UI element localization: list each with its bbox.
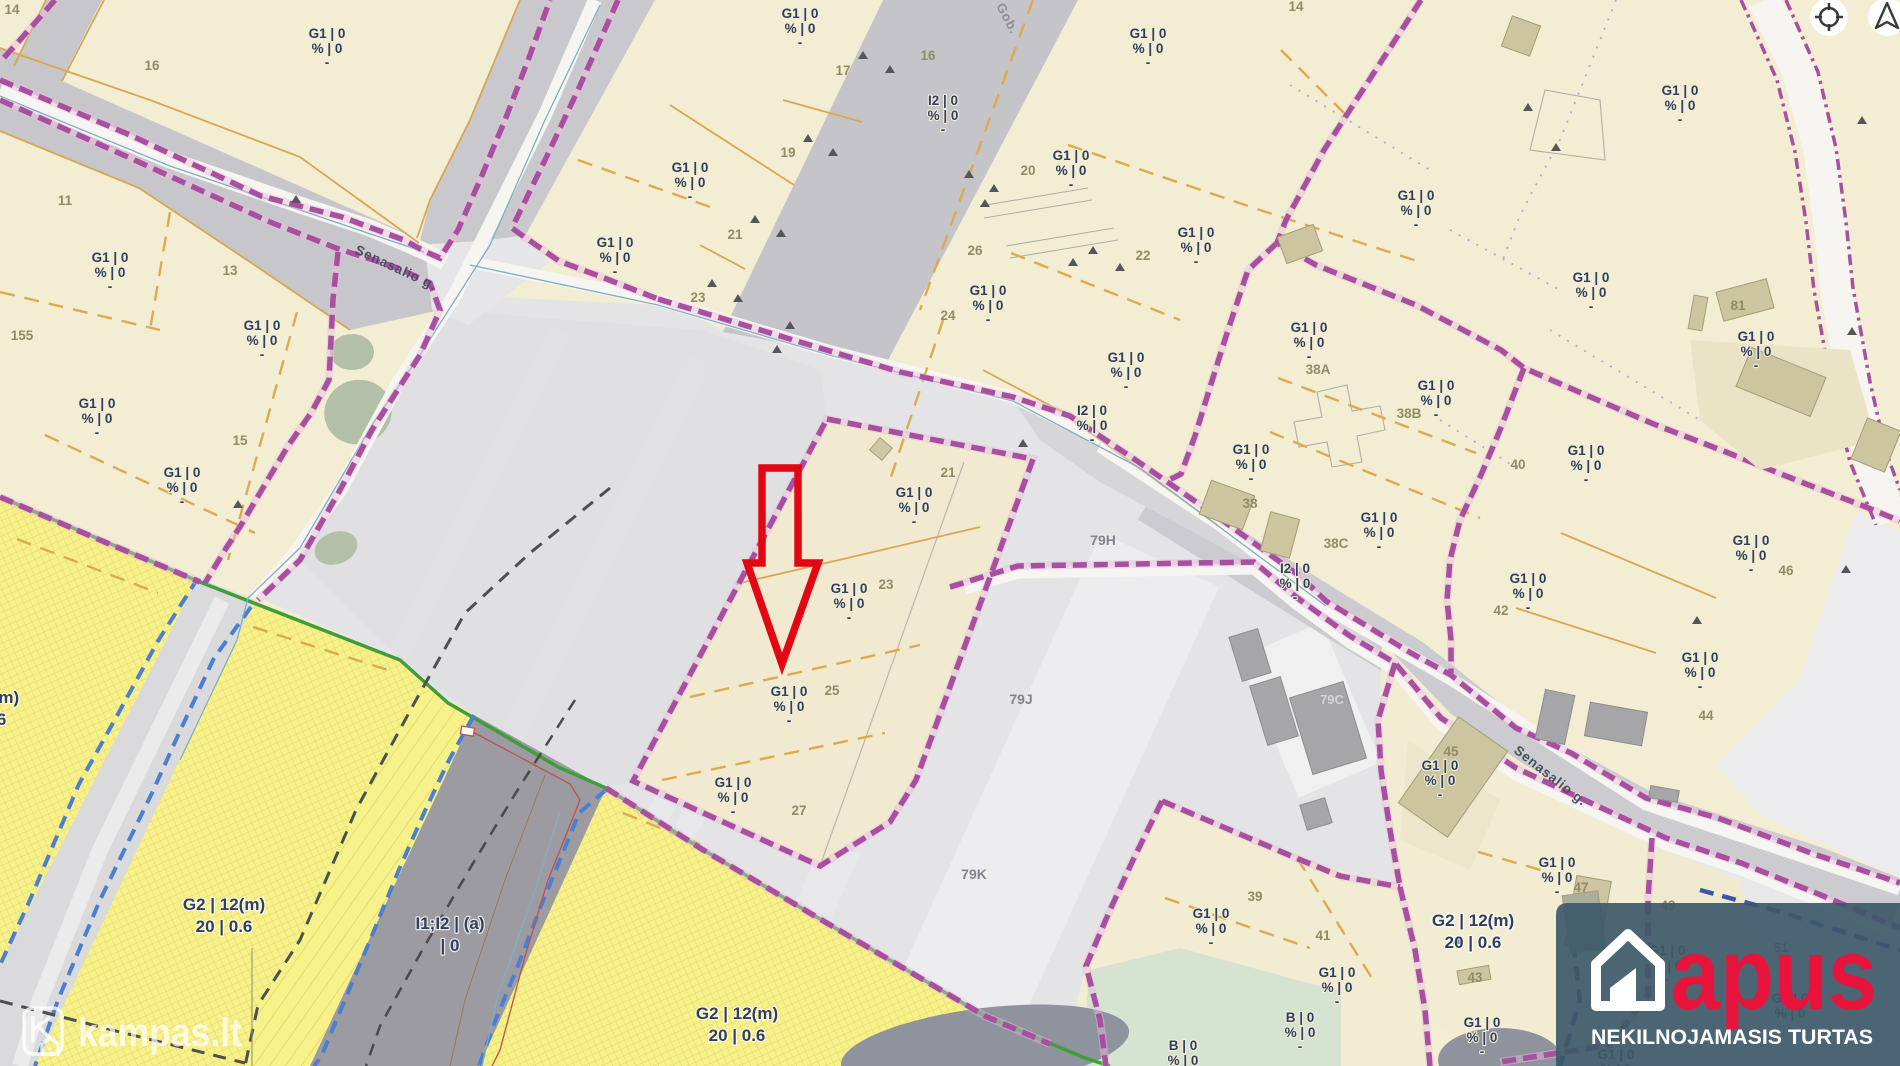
svg-text:-: - — [1438, 787, 1443, 802]
svg-text:79K: 79K — [961, 866, 987, 882]
svg-text:20: 20 — [1020, 163, 1035, 178]
svg-text:apus: apus — [1671, 917, 1877, 1031]
svg-text:27: 27 — [791, 803, 806, 818]
svg-text:38B: 38B — [1397, 406, 1422, 421]
svg-text:NEKILNOJAMASIS TURTAS: NEKILNOJAMASIS TURTAS — [1591, 1025, 1873, 1049]
svg-text:-: - — [613, 264, 618, 279]
svg-text:G1 | 0: G1 | 0 — [597, 235, 634, 250]
svg-text:% | 0: % | 0 — [247, 333, 278, 348]
svg-text:-: - — [941, 122, 946, 137]
svg-text:% | 0: % | 0 — [718, 790, 749, 805]
svg-text:I2 | 0: I2 | 0 — [928, 93, 958, 108]
svg-text:-: - — [688, 189, 693, 204]
svg-text:-: - — [1584, 472, 1589, 487]
svg-text:-: - — [1589, 299, 1594, 314]
svg-text:G1 | 0: G1 | 0 — [1130, 26, 1167, 41]
svg-text:G1 | 0: G1 | 0 — [1398, 188, 1435, 203]
svg-text:% | 0: % | 0 — [82, 411, 113, 426]
svg-text:-: - — [325, 55, 330, 70]
svg-text:G1 | 0: G1 | 0 — [1662, 83, 1699, 98]
svg-text:I2 | 0: I2 | 0 — [1077, 403, 1107, 418]
svg-text:% | 0: % | 0 — [312, 41, 343, 56]
svg-text:I1;I2 | (a): I1;I2 | (a) — [416, 914, 485, 933]
svg-text:% | 0: % | 0 — [167, 480, 198, 495]
svg-text:24: 24 — [940, 308, 956, 323]
svg-text:% | 0: % | 0 — [928, 108, 959, 123]
svg-text:-: - — [1678, 112, 1683, 127]
svg-text:G1 | 0: G1 | 0 — [1464, 1015, 1501, 1030]
svg-text:G1 | 0: G1 | 0 — [1053, 148, 1090, 163]
svg-text:% | 0: % | 0 — [1181, 240, 1212, 255]
svg-text:-: - — [1124, 379, 1129, 394]
svg-text:-: - — [1249, 471, 1254, 486]
svg-text:G1 | 0: G1 | 0 — [1422, 758, 1459, 773]
svg-text:-: - — [180, 494, 185, 509]
svg-text:B | 0: B | 0 — [1169, 1038, 1198, 1053]
svg-text:-: - — [1749, 562, 1754, 577]
svg-text:% | 0: % | 0 — [1077, 418, 1108, 433]
svg-text:39: 39 — [1247, 889, 1262, 904]
svg-text:-: - — [787, 713, 792, 728]
svg-text:G1 | 0: G1 | 0 — [896, 485, 933, 500]
svg-text:% | 0: % | 0 — [1111, 365, 1142, 380]
svg-text:G1 | 0: G1 | 0 — [1193, 906, 1230, 921]
svg-text:G2 | 12(m): G2 | 12(m) — [696, 1004, 778, 1023]
svg-text:% | 0: % | 0 — [834, 596, 865, 611]
svg-text:-: - — [986, 312, 991, 327]
svg-text:G1 | 0: G1 | 0 — [79, 396, 116, 411]
svg-text:% | 0: % | 0 — [1285, 1025, 1316, 1040]
svg-text:13: 13 — [222, 263, 238, 278]
svg-text:% | 0: % | 0 — [1467, 1030, 1498, 1045]
svg-text:% | 0: % | 0 — [1364, 525, 1395, 540]
svg-text:23: 23 — [690, 290, 706, 305]
svg-text:21: 21 — [727, 227, 743, 242]
svg-text:G1 | 0: G1 | 0 — [1539, 855, 1576, 870]
svg-text:% | 0: % | 0 — [899, 500, 930, 515]
svg-text:46: 46 — [1778, 563, 1794, 578]
svg-text:% | 0: % | 0 — [1236, 457, 1267, 472]
svg-text:-: - — [1298, 1039, 1303, 1054]
svg-text:14: 14 — [1288, 0, 1304, 14]
svg-text:G1 | 0: G1 | 0 — [164, 465, 201, 480]
svg-text:16: 16 — [920, 48, 936, 63]
svg-text:G1 | 0: G1 | 0 — [1319, 965, 1356, 980]
svg-text:21: 21 — [940, 465, 956, 480]
svg-text:-: - — [1434, 407, 1439, 422]
svg-text:42: 42 — [1493, 603, 1508, 618]
svg-text:% | 0: % | 0 — [973, 298, 1004, 313]
svg-text:38: 38 — [1242, 496, 1258, 511]
svg-text:81: 81 — [1730, 298, 1746, 313]
svg-text:40: 40 — [1510, 457, 1525, 472]
svg-text:G1 | 0: G1 | 0 — [1418, 378, 1455, 393]
svg-text:-: - — [1293, 590, 1298, 605]
svg-text:23: 23 — [878, 577, 894, 592]
svg-text:43: 43 — [1467, 970, 1483, 985]
svg-text:kampas.lt: kampas.lt — [78, 1011, 242, 1055]
svg-text:-: - — [1414, 217, 1419, 232]
svg-text:-: - — [95, 425, 100, 440]
svg-text:20 | 0.6: 20 | 0.6 — [0, 710, 6, 729]
svg-text:G1 | 0: G1 | 0 — [1291, 320, 1328, 335]
svg-text:G2 | 12(m): G2 | 12(m) — [183, 895, 265, 914]
svg-text:79C: 79C — [1320, 692, 1344, 707]
svg-text:% | 0: % | 0 — [1322, 980, 1353, 995]
svg-text:G1 | 0: G1 | 0 — [1733, 533, 1770, 548]
svg-text:G1 | 0: G1 | 0 — [1233, 442, 1270, 457]
svg-text:% | 0: % | 0 — [1401, 203, 1432, 218]
svg-text:G1 | 0: G1 | 0 — [244, 318, 281, 333]
svg-text:I2 | 0: I2 | 0 — [1280, 561, 1310, 576]
svg-text:G1 | 0: G1 | 0 — [1108, 350, 1145, 365]
svg-text:20 | 0.6: 20 | 0.6 — [1445, 933, 1502, 952]
svg-text:% | 0: % | 0 — [1133, 41, 1164, 56]
svg-text:% | 0: % | 0 — [1168, 1053, 1199, 1066]
svg-text:G1 | 0: G1 | 0 — [782, 6, 819, 21]
svg-text:-: - — [1146, 55, 1151, 70]
svg-text:-: - — [1194, 254, 1199, 269]
svg-text:G1 | 0: G1 | 0 — [831, 581, 868, 596]
svg-text:-: - — [1526, 600, 1531, 615]
svg-text:38A: 38A — [1306, 362, 1331, 377]
svg-text:| 0: | 0 — [441, 936, 460, 955]
svg-text:-: - — [1698, 679, 1703, 694]
svg-text:-: - — [1555, 884, 1560, 899]
svg-text:-: - — [1480, 1044, 1485, 1059]
svg-text:% | 0: % | 0 — [1542, 870, 1573, 885]
svg-text:41: 41 — [1315, 928, 1331, 943]
svg-text:-: - — [1090, 432, 1095, 447]
svg-text:19: 19 — [780, 145, 795, 160]
svg-text:G1 | 0: G1 | 0 — [1510, 571, 1547, 586]
svg-text:G1 | 0: G1 | 0 — [672, 160, 709, 175]
svg-text:17: 17 — [835, 63, 850, 78]
svg-text:% | 0: % | 0 — [774, 699, 805, 714]
svg-text:16: 16 — [144, 58, 160, 73]
svg-text:-: - — [912, 514, 917, 529]
svg-text:% | 0: % | 0 — [1736, 548, 1767, 563]
svg-text:G1 | 0: G1 | 0 — [1361, 510, 1398, 525]
svg-text:-: - — [1209, 935, 1214, 950]
svg-text:% | 0: % | 0 — [1056, 163, 1087, 178]
svg-text:-: - — [1069, 177, 1074, 192]
svg-text:11: 11 — [58, 193, 73, 208]
svg-text:44: 44 — [1698, 708, 1714, 723]
svg-text:26: 26 — [967, 243, 983, 258]
svg-text:G2 | 12(m): G2 | 12(m) — [1432, 911, 1514, 930]
svg-text:G1 | 0: G1 | 0 — [1738, 329, 1775, 344]
svg-text:G1 | 0: G1 | 0 — [1178, 225, 1215, 240]
svg-text:14: 14 — [4, 2, 20, 17]
svg-text:155: 155 — [11, 328, 34, 343]
svg-text:G1 | 0: G1 | 0 — [1568, 443, 1605, 458]
svg-text:% | 0: % | 0 — [1576, 285, 1607, 300]
svg-text:-: - — [731, 804, 736, 819]
svg-text:% | 0: % | 0 — [1294, 335, 1325, 350]
svg-text:G1 | 0: G1 | 0 — [771, 684, 808, 699]
svg-text:G1 | 0: G1 | 0 — [92, 250, 129, 265]
svg-text:-: - — [1335, 994, 1340, 1009]
svg-text:B | 0: B | 0 — [1286, 1010, 1315, 1025]
svg-text:% | 0: % | 0 — [1280, 576, 1311, 591]
svg-text:G1 | 0: G1 | 0 — [1573, 270, 1610, 285]
svg-text:% | 0: % | 0 — [1665, 98, 1696, 113]
svg-text:% | 0: % | 0 — [600, 250, 631, 265]
svg-text:% | 0: % | 0 — [1196, 921, 1227, 936]
svg-text:G2 | 12(m): G2 | 12(m) — [0, 688, 19, 707]
svg-text:% | 0: % | 0 — [1425, 773, 1456, 788]
svg-text:G1 | 0: G1 | 0 — [970, 283, 1007, 298]
svg-text:-: - — [1377, 539, 1382, 554]
svg-text:-: - — [260, 347, 265, 362]
svg-text:% | 0: % | 0 — [1741, 344, 1772, 359]
svg-text:25: 25 — [824, 683, 840, 698]
svg-text:% | 0: % | 0 — [1513, 586, 1544, 601]
svg-text:% | 0: % | 0 — [1421, 393, 1452, 408]
svg-text:45: 45 — [1443, 744, 1459, 759]
svg-text:G1 | 0: G1 | 0 — [309, 26, 346, 41]
svg-text:47: 47 — [1573, 880, 1588, 895]
svg-text:20 | 0.6: 20 | 0.6 — [709, 1026, 766, 1045]
svg-text:79J: 79J — [1009, 691, 1032, 707]
svg-text:20 | 0.6: 20 | 0.6 — [196, 917, 253, 936]
svg-text:15: 15 — [232, 433, 248, 448]
svg-text:38C: 38C — [1324, 536, 1349, 551]
svg-text:G1 | 0: G1 | 0 — [715, 775, 752, 790]
svg-text:22: 22 — [1135, 248, 1150, 263]
svg-text:-: - — [798, 35, 803, 50]
svg-text:% | 0: % | 0 — [1571, 458, 1602, 473]
svg-text:% | 0: % | 0 — [95, 265, 126, 280]
svg-text:% | 0: % | 0 — [1685, 665, 1716, 680]
svg-text:-: - — [847, 610, 852, 625]
svg-text:-: - — [1754, 358, 1759, 373]
svg-text:79H: 79H — [1090, 532, 1116, 548]
svg-text:-: - — [108, 279, 113, 294]
svg-text:% | 0: % | 0 — [785, 21, 816, 36]
svg-text:% | 0: % | 0 — [675, 175, 706, 190]
svg-text:G1 | 0: G1 | 0 — [1682, 650, 1719, 665]
